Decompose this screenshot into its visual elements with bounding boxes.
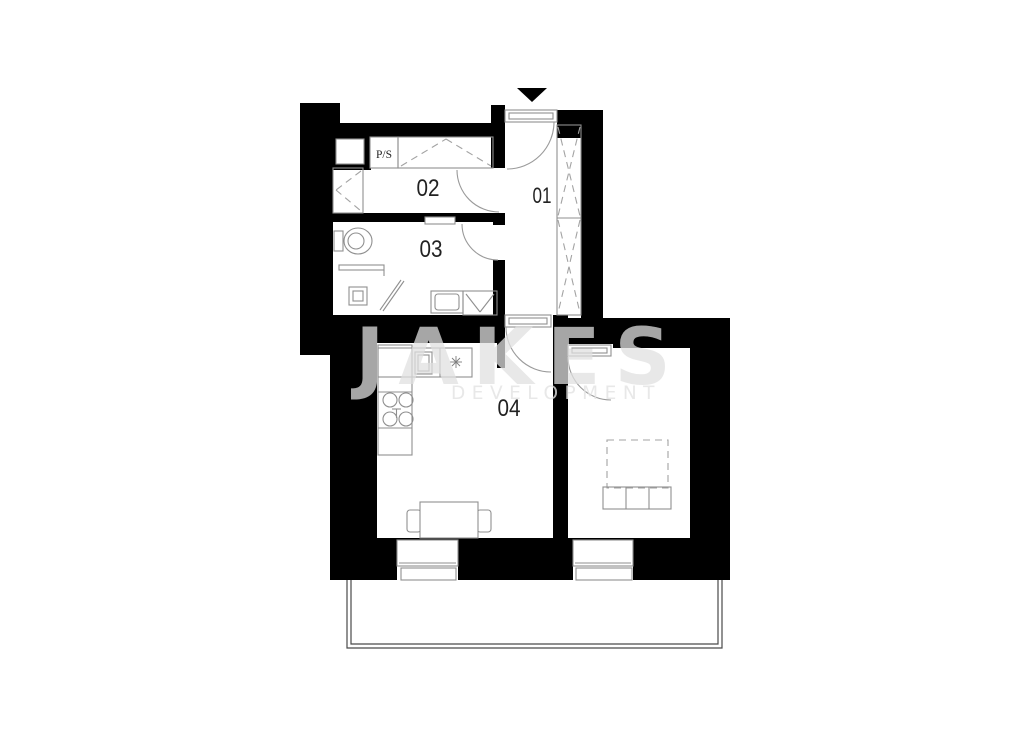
room-01-label: 01	[533, 183, 552, 208]
room-02-door-swing	[457, 170, 499, 212]
room-02-wardrobe	[333, 168, 363, 213]
bed-mattress	[607, 440, 668, 488]
floor-plan: 01 P/S 02	[0, 0, 1024, 739]
entrance-arrow-icon	[517, 88, 547, 102]
entrance-door-threshold	[505, 110, 557, 122]
shower-tray	[463, 291, 497, 315]
room-03-bathroom: 03	[334, 217, 498, 315]
entrance	[505, 88, 557, 169]
washing-machine	[431, 291, 463, 313]
dining-table	[407, 502, 491, 538]
floor-plan-page: 01 P/S 02	[0, 0, 1024, 739]
room-02-closet	[398, 137, 493, 168]
balcony	[347, 580, 722, 648]
sink	[349, 287, 367, 305]
table	[420, 502, 478, 538]
shaft-opening	[336, 139, 364, 164]
entrance-door-swing	[507, 122, 554, 169]
chair-left	[407, 510, 421, 532]
room-03-label: 03	[420, 236, 443, 263]
vent-grille	[425, 217, 455, 224]
pantry-label: P/S	[376, 149, 392, 161]
hall-wardrobe	[557, 125, 581, 315]
room-02-label: 02	[417, 175, 440, 202]
towel-rail	[339, 265, 384, 276]
bed	[603, 440, 671, 509]
window-opening-bedroom	[573, 540, 633, 580]
watermark-subtitle: DEVELOPMENT	[451, 383, 661, 404]
bed-base	[603, 487, 671, 509]
bathroom-door-swing	[462, 224, 498, 260]
window-opening-living	[397, 540, 458, 580]
chair-right	[477, 510, 491, 532]
radiator	[380, 280, 404, 311]
toilet	[334, 228, 372, 254]
watermark: JAKES DEVELOPMENT	[350, 313, 684, 404]
